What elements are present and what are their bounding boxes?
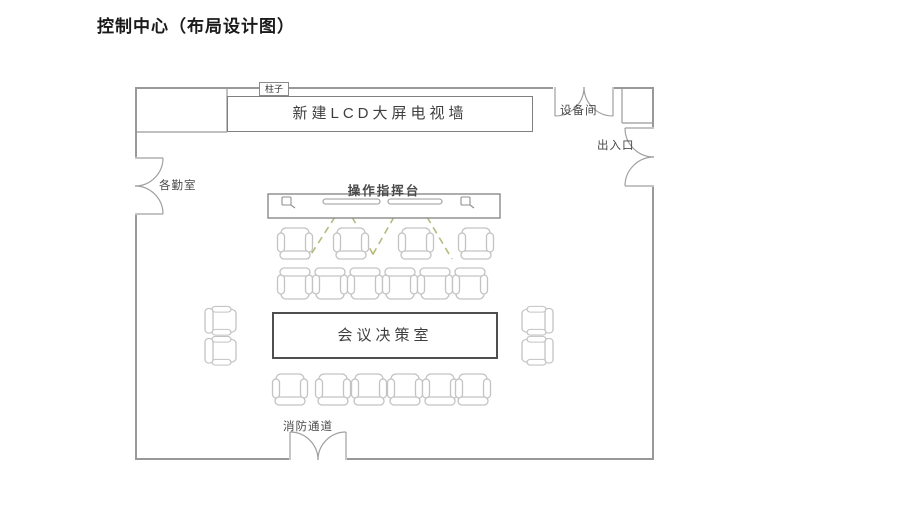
chair [522,336,553,365]
page-title: 控制中心（布局设计图） [97,12,295,37]
fire-exit-label: 消防通道 [283,418,333,434]
chair [334,228,369,259]
fire-exit-door [290,432,346,460]
entrance-label: 出入口 [597,137,635,153]
chair [453,268,488,299]
lcd-wall-box: 新建LCD大屏电视墙 [227,96,533,132]
pillar-label-box: 柱子 [259,82,289,96]
chair [418,268,453,299]
duty-room-label: 各勤室 [159,177,197,193]
side-chairs-left [205,306,236,365]
chair [383,268,418,299]
chair-row-upper [278,268,488,299]
floor-plan: 新建LCD大屏电视墙 柱子 设备间 出入口 各勤室 操作指挥台 会议决策室 消防… [135,87,654,460]
chair [278,268,313,299]
top-left-room-partition [136,88,227,132]
side-chairs-right [522,306,553,365]
console-desk [388,199,442,204]
meeting-room-label: 会议决策室 [273,313,497,358]
chair [348,268,383,299]
chair [459,228,494,259]
console-label: 操作指挥台 [268,180,500,199]
chair [352,374,387,405]
chair [205,306,236,335]
console-desk [323,199,380,204]
chair-row-lower [273,374,491,405]
top-right-partition [622,88,653,123]
floor-plan-drawing [135,87,654,460]
equipment-room-label: 设备间 [560,102,598,118]
chair [456,374,491,405]
chair [278,228,313,259]
chair [273,374,308,405]
chair [399,228,434,259]
chair [522,306,553,335]
chair [316,374,351,405]
chair [313,268,348,299]
chair [388,374,423,405]
chair [423,374,458,405]
chair [205,336,236,365]
pillar-label: 柱子 [265,84,283,94]
lcd-wall-label: 新建LCD大屏电视墙 [292,105,467,122]
